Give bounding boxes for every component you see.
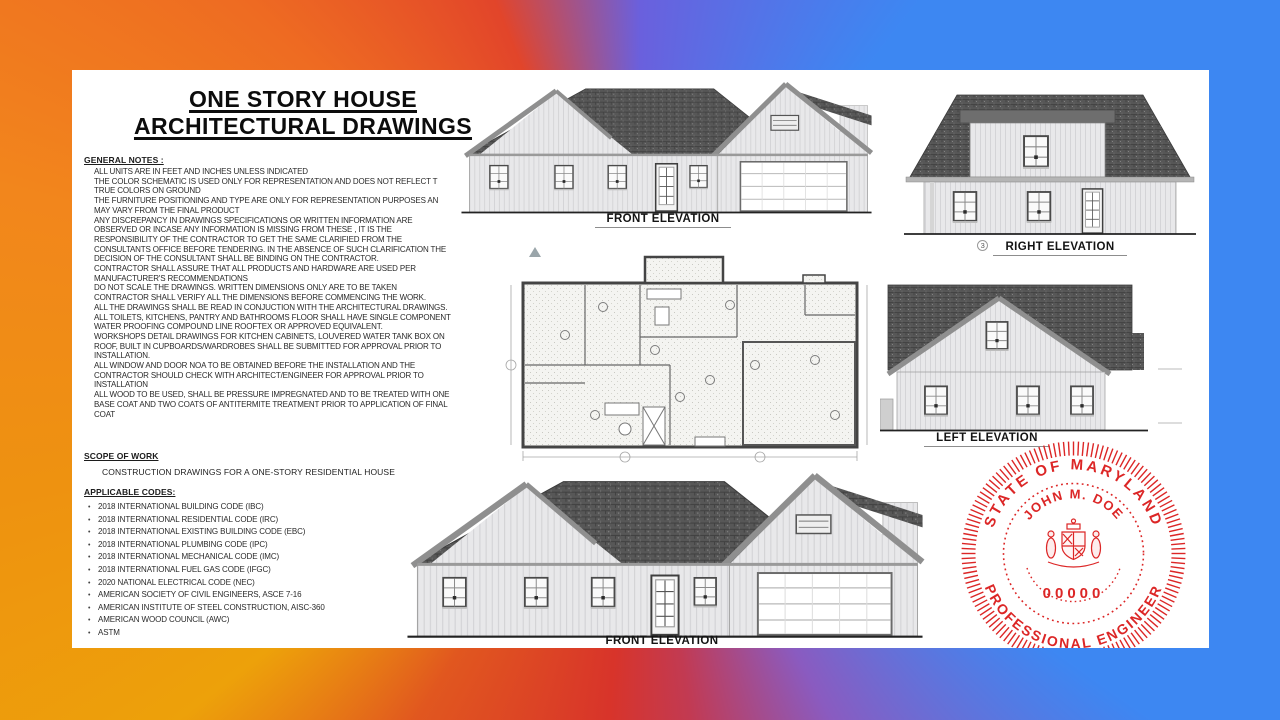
bullet-icon: • [88,628,98,640]
applicable-code-text: 2020 NATIONAL ELECTRICAL CODE (NEC) [98,577,255,589]
applicable-code-item: • 2018 INTERNATIONAL PLUMBING CODE (IPC) [88,539,325,552]
front-elevation-top-label: FRONT ELEVATION [538,213,788,225]
general-note-line: CONTRACTOR SHALL ASSURE THAT ALL PRODUCT… [94,264,534,274]
general-note-line: ALL WOOD TO BE USED, SHALL BE PRESSURE I… [94,390,534,400]
bullet-icon: • [88,615,98,627]
general-note-line: OBSERVED OR INCASE ANY INFORMATION IS MI… [94,225,534,235]
right-elevation-label: 3RIGHT ELEVATION [952,240,1152,253]
applicable-codes-heading: APPLICABLE CODES: [84,487,175,497]
applicable-code-text: 2018 INTERNATIONAL MECHANICAL CODE (IMC) [98,551,279,563]
applicable-code-text: 2018 INTERNATIONAL EXISTING BUILDING COD… [98,526,305,538]
applicable-code-item: • 2020 NATIONAL ELECTRICAL CODE (NEC) [88,577,325,590]
general-note-line: MANUFACTURER'S RECOMMENDATIONS [94,274,534,284]
applicable-code-item: • AMERICAN SOCIETY OF CIVIL ENGINEERS, A… [88,589,325,602]
applicable-code-item: • 2018 INTERNATIONAL MECHANICAL CODE (IM… [88,551,325,564]
general-note-line: ALL WINDOW AND DOOR NOA TO BE OBTAINED B… [94,361,534,371]
bullet-icon: • [88,590,98,602]
applicable-code-text: AMERICAN SOCIETY OF CIVIL ENGINEERS, ASC… [98,589,301,601]
desktop-background: { "page": { "title_line1": "ONE STORY HO… [0,0,1280,720]
general-note-line: CONTRACTOR SHOULD CHECK WITH ARCHITECT/E… [94,371,534,381]
general-note-line: ROOF, BUILT IN CUPBOARDS/WARDROBES SHALL… [94,342,534,352]
bullet-icon: • [88,603,98,615]
applicable-code-item: • 2018 INTERNATIONAL EXISTING BUILDING C… [88,526,325,539]
general-note-line: RESPONSIBILITY OF THE CONTRACTOR TO GET … [94,235,534,245]
applicable-code-text: AMERICAN INSTITUTE OF STEEL CONSTRUCTION… [98,602,325,614]
front-elevation-bottom-label: FRONT ELEVATION [532,635,792,647]
applicable-code-text: ASTM [98,627,120,639]
general-note-line: WORKSHOPS DETAIL DRAWINGS FOR KITCHEN CA… [94,332,534,342]
general-note-line: COAT [94,410,534,420]
sheet-title-line2: ARCHITECTURAL DRAWINGS [88,113,518,140]
svg-text:JOHN M. DOE: JOHN M. DOE [1020,486,1127,522]
applicable-code-text: AMERICAN WOOD COUNCIL (AWC) [98,614,229,626]
general-note-line: DO NOT SCALE THE DRAWINGS. WRITTEN DIMEN… [94,283,534,293]
applicable-code-text: 2018 INTERNATIONAL FUEL GAS CODE (IFGC) [98,564,271,576]
bullet-icon: • [88,578,98,590]
bullet-icon: • [88,527,98,539]
drawing-sheet: ONE STORY HOUSE ARCHITECTURAL DRAWINGS G… [72,70,1209,648]
applicable-code-item: • 2018 INTERNATIONAL BUILDING CODE (IBC) [88,501,325,514]
scope-of-work-heading: SCOPE OF WORK [84,451,159,461]
scope-of-work-body: CONSTRUCTION DRAWINGS FOR A ONE-STORY RE… [102,467,395,477]
general-note-line: INSTALLATION. [94,351,534,361]
front-elevation-drawing-top [459,78,874,216]
bullet-icon: • [88,540,98,552]
applicable-code-text: 2018 INTERNATIONAL PLUMBING CODE (IPC) [98,539,268,551]
applicable-code-text: 2018 INTERNATIONAL BUILDING CODE (IBC) [98,501,264,513]
bullet-icon: • [88,515,98,527]
professional-engineer-stamp: STATE OF MARYLAND PROFESSIONAL ENGINEER … [956,436,1191,648]
general-notes-heading: GENERAL NOTES : [84,155,164,165]
general-note-line: ALL THE DRAWINGS SHALL BE READ IN CONJUC… [94,303,534,313]
bullet-icon: • [88,502,98,514]
applicable-code-text: 2018 INTERNATIONAL RESIDENTIAL CODE (IRC… [98,514,278,526]
general-note-line: ANY DISCREPANCY IN DRAWINGS SPECIFICATIO… [94,216,534,226]
bullet-icon: • [88,552,98,564]
applicable-code-item: • AMERICAN WOOD COUNCIL (AWC) [88,614,325,627]
maryland-coat-of-arms [1047,519,1101,567]
applicable-code-item: • 2018 INTERNATIONAL FUEL GAS CODE (IFGC… [88,564,325,577]
general-note-line: ALL TOILETS, KITCHENS, PANTRY AND BATHRO… [94,313,534,323]
applicable-codes-list: • 2018 INTERNATIONAL BUILDING CODE (IBC)… [88,501,325,640]
detail-marker: 3 [977,240,988,251]
right-elevation-drawing [900,85,1200,235]
applicable-code-item: • AMERICAN INSTITUTE OF STEEL CONSTRUCTI… [88,602,325,615]
bullet-icon: • [88,565,98,577]
sheet-title-line1: ONE STORY HOUSE [88,86,518,113]
general-note-line: WATER PROOFING COMPOUND LINE ROOFTEX OR … [94,322,534,332]
applicable-code-item: • 2018 INTERNATIONAL RESIDENTIAL CODE (I… [88,514,325,527]
floor-plan-drawing [505,245,875,465]
left-elevation-drawing [880,273,1190,443]
sheet-title: ONE STORY HOUSE ARCHITECTURAL DRAWINGS [88,86,518,140]
front-elevation-drawing-bottom [405,468,925,641]
stamp-license-number: 00000 [1043,585,1105,602]
stamp-name-text: JOHN M. DOE [1020,486,1127,522]
general-note-line: CONTRACTOR SHALL VERIFY ALL THE DIMENSIO… [94,293,534,303]
general-note-line: CONSULTANTS OFFICE BEFORE TENDERING. IN … [94,245,534,255]
general-note-line: INSTALLATION [94,380,534,390]
general-note-line: DECISION OF THE CONSULTANT SHALL BE BIND… [94,254,534,264]
general-note-line: BASE COAT AND TWO COATS OF ANTITERMITE T… [94,400,534,410]
applicable-code-item: • ASTM [88,627,325,640]
